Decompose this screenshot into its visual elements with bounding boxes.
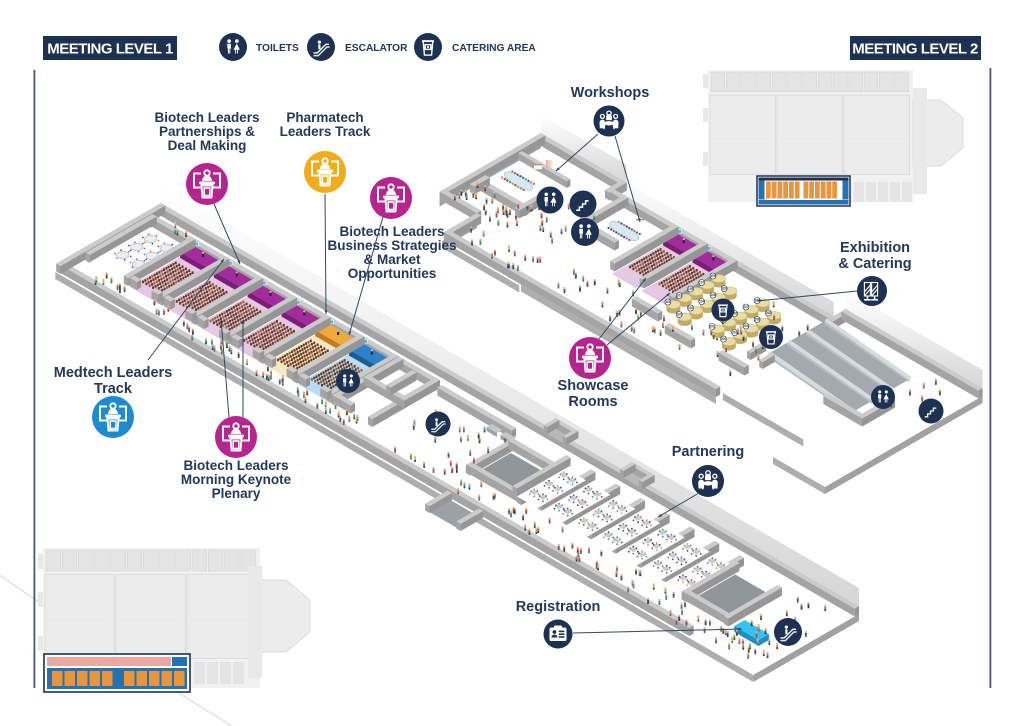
svg-text:100: 100 [677, 313, 683, 317]
svg-text:Business Strategies: Business Strategies [327, 238, 456, 253]
svg-text:Pharmatech: Pharmatech [286, 110, 363, 125]
svg-text:Workshops: Workshops [571, 85, 650, 101]
svg-text:207: 207 [743, 305, 749, 309]
svg-text:102: 102 [688, 306, 694, 310]
svg-text:105: 105 [688, 287, 694, 291]
svg-text:Biotech Leaders: Biotech Leaders [339, 224, 444, 239]
svg-text:Partnering: Partnering [672, 444, 745, 460]
svg-text:208: 208 [766, 311, 772, 315]
svg-text:Leaders Track: Leaders Track [280, 124, 371, 139]
svg-text:& Catering: & Catering [838, 256, 911, 272]
svg-text:Track: Track [94, 381, 133, 397]
svg-text:Deal Making: Deal Making [168, 138, 247, 153]
svg-text:MEETING LEVEL 2: MEETING LEVEL 2 [852, 41, 978, 58]
svg-text:Medtech Leaders: Medtech Leaders [54, 365, 172, 381]
svg-text:206: 206 [754, 318, 760, 322]
svg-text:Partnerships &: Partnerships & [159, 124, 255, 139]
svg-text:Morning Keynote: Morning Keynote [181, 472, 292, 487]
svg-text:Rooms: Rooms [568, 394, 617, 410]
svg-text:Exhibition: Exhibition [840, 240, 910, 256]
svg-text:Biotech Leaders: Biotech Leaders [154, 110, 259, 125]
svg-text:200: 200 [721, 337, 727, 341]
svg-text:Plenary: Plenary [212, 486, 261, 501]
svg-text:103: 103 [677, 294, 683, 298]
svg-text:Registration: Registration [516, 599, 601, 615]
svg-text:Opportunities: Opportunities [348, 266, 437, 281]
svg-text:101: 101 [665, 300, 671, 304]
svg-text:ESCALATOR: ESCALATOR [345, 43, 408, 54]
svg-text:Showcase: Showcase [558, 378, 629, 394]
svg-text:201: 201 [709, 325, 715, 329]
svg-text:109: 109 [710, 274, 716, 278]
svg-text:204: 204 [743, 324, 749, 328]
svg-text:106: 106 [710, 293, 716, 297]
svg-text:104: 104 [699, 300, 705, 304]
svg-text:202: 202 [732, 331, 738, 335]
svg-text:Biotech Leaders: Biotech Leaders [183, 458, 288, 473]
svg-text:MEETING LEVEL 1: MEETING LEVEL 1 [47, 41, 173, 58]
svg-text:108: 108 [722, 287, 728, 291]
svg-text:TOILETS: TOILETS [256, 43, 299, 54]
svg-text:107: 107 [699, 281, 705, 285]
svg-text:CATERING AREA: CATERING AREA [452, 43, 536, 54]
